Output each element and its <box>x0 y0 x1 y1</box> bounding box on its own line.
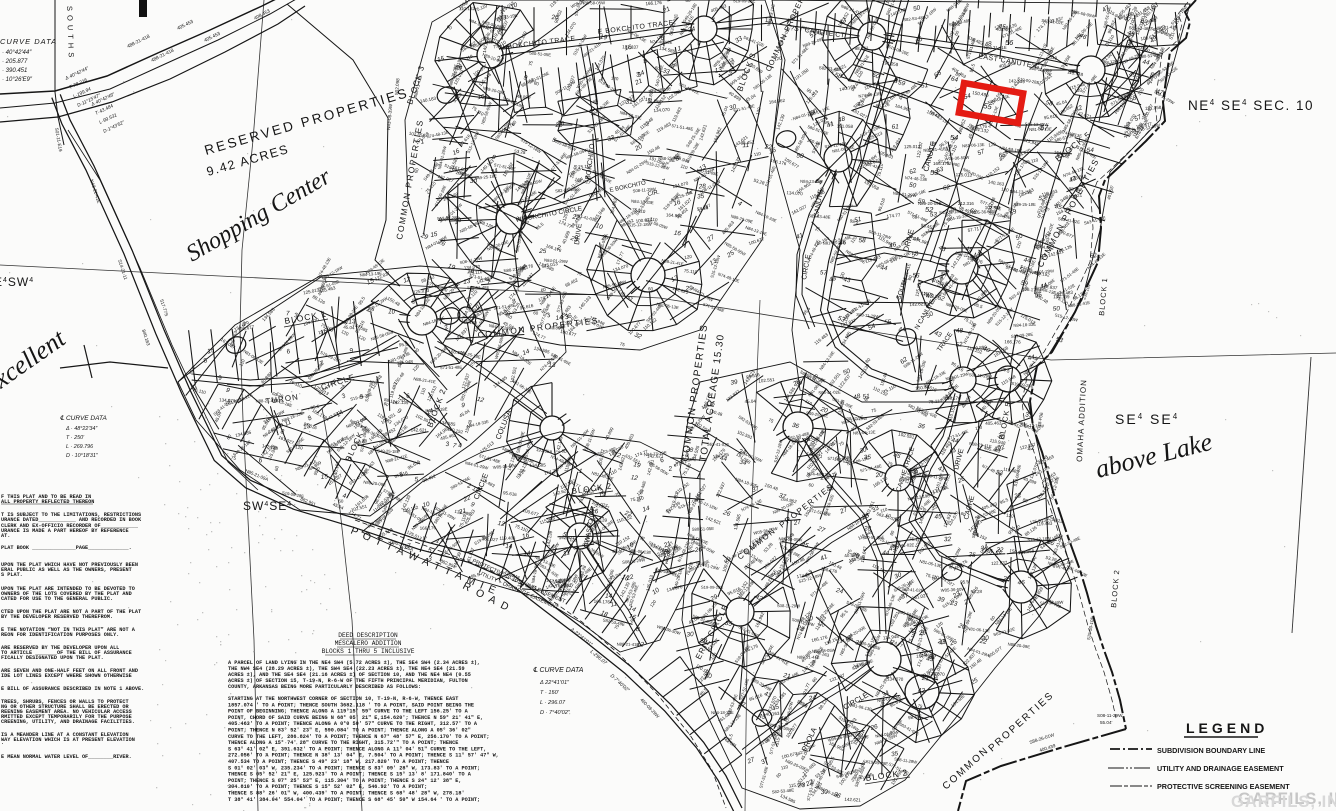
svg-text:28: 28 <box>863 525 872 532</box>
svg-text:S 01° 02′ 03″ W, 235.234′ TO A: S 01° 02′ 03″ W, 235.234′ TO A POINT; TH… <box>228 765 480 771</box>
svg-text:14: 14 <box>505 543 513 550</box>
svg-text:13: 13 <box>348 318 356 326</box>
svg-text:191.058: 191.058 <box>1145 105 1162 111</box>
svg-text:22: 22 <box>763 143 772 151</box>
svg-text:S19-09-28E: S19-09-28E <box>701 585 724 590</box>
svg-text:S49-25-18E: S49-25-18E <box>377 448 400 454</box>
svg-text:T · 250′: T · 250′ <box>66 435 85 441</box>
svg-text:Δ · 48°22′34″: Δ · 48°22′34″ <box>65 426 98 432</box>
svg-text:57: 57 <box>1040 123 1049 132</box>
svg-text:166.176: 166.176 <box>933 161 950 166</box>
svg-text:58: 58 <box>858 237 866 244</box>
svg-text:60: 60 <box>573 546 579 551</box>
svg-text:5: 5 <box>414 476 418 483</box>
svg-text:35: 35 <box>855 639 863 647</box>
svg-text:13: 13 <box>548 362 556 369</box>
svg-text:48: 48 <box>956 327 964 334</box>
svg-text:25: 25 <box>967 551 977 559</box>
svg-text:44: 44 <box>882 550 890 557</box>
svg-text:52: 52 <box>925 205 934 214</box>
svg-text:30: 30 <box>470 178 478 185</box>
svg-text:AT.: AT. <box>1 533 10 539</box>
svg-text:3: 3 <box>428 556 432 563</box>
svg-text:61: 61 <box>892 123 900 130</box>
svg-text:142.621: 142.621 <box>411 427 428 433</box>
svg-text:CREENING, UTILITY, AND DRAINAG: CREENING, UTILITY, AND DRAINAGE FACILITI… <box>1 719 135 725</box>
svg-text:BLOCKS 1 THRU 5 INCLUSIVE: BLOCKS 1 THRU 5 INCLUSIVE <box>322 648 415 655</box>
svg-text:11: 11 <box>742 142 749 149</box>
svg-text:D · 7°40′02″: D · 7°40′02″ <box>540 710 571 716</box>
svg-text:44: 44 <box>880 264 888 272</box>
svg-text:45: 45 <box>934 513 942 521</box>
svg-text:125.013: 125.013 <box>956 172 973 178</box>
svg-text:57: 57 <box>820 269 828 276</box>
svg-text:166.176: 166.176 <box>1004 339 1021 344</box>
svg-text:14: 14 <box>523 550 531 558</box>
svg-text:14: 14 <box>605 593 613 600</box>
svg-text:21: 21 <box>921 675 930 683</box>
svg-text:CURVE DATA: CURVE DATA <box>0 37 57 46</box>
svg-text:THENCE S 88° 26′ 01″ W, 400.43: THENCE S 88° 26′ 01″ W, 400.439′ TO A PO… <box>228 791 465 797</box>
svg-text:T · 150′: T · 150′ <box>540 690 560 696</box>
svg-text:THENCE S 05° 52′ 21″ E, 125.92: THENCE S 05° 52′ 21″ E, 125.923′ TO A PO… <box>228 772 472 778</box>
svg-text:STARTING AT THE NORTHWEST CORN: STARTING AT THE NORTHWEST CORNER OF SECT… <box>228 696 458 702</box>
svg-text:COUNTY, ARKANSAS BEING MORE PA: COUNTY, ARKANSAS BEING MORE PARTICULARLY… <box>228 684 421 690</box>
svg-text:42: 42 <box>918 687 926 694</box>
svg-text:MESCALERO ADDITION: MESCALERO ADDITION <box>335 640 402 647</box>
svg-text:80: 80 <box>1047 49 1053 54</box>
svg-text:44: 44 <box>719 455 727 463</box>
svg-text:· 10°26′E9″: · 10°26′E9″ <box>2 77 33 83</box>
svg-text:405.463′ TO A POINT; THENCE AL: 405.463′ TO A POINT; THENCE ALONG A 0°0 … <box>228 721 478 727</box>
svg-text:25: 25 <box>600 234 609 242</box>
svg-text:POINT; THENCE N 83° 52′ 23″ E,: POINT; THENCE N 83° 52′ 23″ E, 590.084′ … <box>228 728 471 734</box>
svg-text:62: 62 <box>955 341 963 349</box>
svg-text:THENCE ALONG A 15° 74′ 28″ CUR: THENCE ALONG A 15° 74′ 28″ CURVE TO THE … <box>228 740 458 746</box>
svg-text:191.058: 191.058 <box>837 124 854 129</box>
svg-text:NE4 SE4 SEC. 10: NE4 SE4 SEC. 10 <box>1188 98 1314 113</box>
svg-text:75.110: 75.110 <box>909 537 923 543</box>
svg-text:3: 3 <box>242 321 246 328</box>
svg-text:120: 120 <box>569 537 577 542</box>
svg-text:31: 31 <box>1025 411 1033 418</box>
svg-text:102.551: 102.551 <box>985 205 1002 210</box>
svg-text:35: 35 <box>864 454 872 461</box>
svg-text:51: 51 <box>921 82 929 90</box>
svg-text:POINT OF BEGINNING; THENCE ALO: POINT OF BEGINNING; THENCE ALONG A 119°1… <box>228 709 469 715</box>
svg-text:℄ CURVE DATA: ℄ CURVE DATA <box>60 415 107 422</box>
svg-text:580-51-05E: 580-51-05E <box>863 535 885 540</box>
svg-text:30: 30 <box>704 673 712 680</box>
svg-text:27: 27 <box>819 474 828 482</box>
svg-text:CATED FOR USE TO THE GENERAL P: CATED FOR USE TO THE GENERAL PUBLIC. <box>1 596 113 602</box>
svg-text:75: 75 <box>639 555 645 560</box>
svg-text:CURVE TO THE LEFT, 286.824′ TO: CURVE TO THE LEFT, 286.824′ TO A POINT; … <box>228 734 490 740</box>
svg-text:25: 25 <box>538 248 547 255</box>
svg-text:· 40°42′44″: · 40°42′44″ <box>2 50 32 56</box>
svg-text:30: 30 <box>821 789 829 797</box>
svg-text:10: 10 <box>388 308 396 315</box>
svg-text:166.176: 166.176 <box>420 525 437 531</box>
svg-text:55.04′: 55.04′ <box>1100 720 1112 725</box>
svg-text:FICALLY DESIGNATED UPON THE PL: FICALLY DESIGNATED UPON THE PLAT. <box>1 655 104 661</box>
svg-text:26: 26 <box>917 629 926 637</box>
svg-text:E BILL OF ASSURANCE DESCRIBED: E BILL OF ASSURANCE DESCRIBED IN NOTE 1 … <box>1 686 144 692</box>
svg-text:580-51-05E: 580-51-05E <box>692 526 714 532</box>
svg-text:IDE LOT LINES EXCEPT WHERE S: IDE LOT LINES EXCEPT WHERE SHOWN OTHERWI… <box>1 673 132 679</box>
svg-text:304.810′ TO A POINT; THENCE S: 304.810′ TO A POINT; THENCE S 15° 52′ 02… <box>228 784 427 790</box>
svg-text:31: 31 <box>625 98 633 106</box>
svg-text:N89-20-09E: N89-20-09E <box>918 201 942 206</box>
svg-text:54: 54 <box>1087 147 1095 154</box>
svg-text:POINT, CHORD OF SAID CURVE BEI: POINT, CHORD OF SAID CURVE BEING N 68° 0… <box>228 715 483 721</box>
svg-text:53: 53 <box>930 168 939 177</box>
svg-text:50: 50 <box>1053 305 1061 312</box>
svg-text:98.452: 98.452 <box>855 46 869 51</box>
svg-text:29: 29 <box>684 285 693 293</box>
svg-text:38: 38 <box>985 548 993 555</box>
svg-text:80: 80 <box>685 0 691 3</box>
svg-text:30: 30 <box>686 631 694 639</box>
svg-text:S08-11-29W: S08-11-29W <box>777 603 800 608</box>
svg-text:S49-25-18E: S49-25-18E <box>1013 202 1036 207</box>
svg-text:44: 44 <box>1023 257 1031 265</box>
svg-text:S63-41-02E: S63-41-02E <box>818 390 841 396</box>
svg-text:S O U T H S: S O U T H S <box>65 6 76 59</box>
svg-text:60: 60 <box>648 286 654 291</box>
svg-text:L · 269.796: L · 269.796 <box>66 444 93 450</box>
svg-text:22: 22 <box>571 214 580 222</box>
svg-text:65: 65 <box>998 152 1006 160</box>
svg-text:PLAT BOOK ______________PAGE__: PLAT BOOK ______________PAGE____________… <box>1 545 132 551</box>
svg-text:56: 56 <box>912 272 920 280</box>
svg-text:35: 35 <box>697 193 705 201</box>
svg-text:GARFILS, INC: GARFILS, INC <box>1231 793 1336 811</box>
svg-text:S19-09-28E: S19-09-28E <box>733 0 756 3</box>
svg-text:32: 32 <box>944 536 952 543</box>
svg-text:122.837: 122.837 <box>991 560 1008 566</box>
svg-text:BY THE DEVELOPER RESERVED THER: BY THE DEVELOPER RESERVED THEREFROM. <box>1 614 113 620</box>
svg-text:24: 24 <box>737 448 746 456</box>
svg-text:LEGEND: LEGEND <box>1186 720 1268 736</box>
svg-text:Δ 22°41′01″: Δ 22°41′01″ <box>539 680 570 686</box>
svg-text:SUBDIVISION BOUNDARY LINE: SUBDIVISION BOUNDARY LINE <box>1157 746 1265 755</box>
svg-text:95.5: 95.5 <box>960 579 970 585</box>
svg-text:134.585: 134.585 <box>529 463 546 468</box>
svg-text:S 63° 41′ 02″ E, 391.632′ TO A: S 63° 41′ 02″ E, 391.632′ TO A POINT; TH… <box>228 746 486 752</box>
svg-text:56: 56 <box>1005 38 1014 47</box>
svg-text:N85-58-05W: N85-58-05W <box>581 0 605 5</box>
svg-text:119.483: 119.483 <box>499 536 515 541</box>
svg-text:E MEAN NORMAL WATER LEVEL OF__: E MEAN NORMAL WATER LEVEL OF________RIVE… <box>1 754 132 760</box>
svg-text:53.28: 53.28 <box>971 589 983 594</box>
svg-text:S PLAT.: S PLAT. <box>1 572 23 578</box>
svg-text:13: 13 <box>764 16 772 24</box>
svg-text:REON FOR IDENTIFICATION PURPOS: REON FOR IDENTIFICATION PURPOSES ONLY. <box>1 632 119 638</box>
svg-text:51: 51 <box>862 393 870 401</box>
svg-text:142.621: 142.621 <box>844 797 861 803</box>
svg-text:24: 24 <box>807 694 817 702</box>
svg-text:272.056′ TO A POINT; THENCE N: 272.056′ TO A POINT; THENCE N 38° 13′ 04… <box>228 753 499 759</box>
svg-text:54: 54 <box>950 133 958 142</box>
svg-text:55: 55 <box>884 319 892 327</box>
svg-text:20: 20 <box>874 471 883 479</box>
svg-text:26: 26 <box>694 546 703 554</box>
svg-text:115: 115 <box>912 236 920 241</box>
svg-text:120: 120 <box>611 76 619 82</box>
svg-text:46: 46 <box>1018 579 1026 586</box>
svg-text:· 390.451: · 390.451 <box>2 68 27 74</box>
svg-text:WAY ELEVATION WHICH IS AT PRES: WAY ELEVATION WHICH IS AT PRESENT ELEVAT… <box>1 737 135 743</box>
svg-text:16: 16 <box>673 230 681 238</box>
svg-text:SE4 SE4: SE4 SE4 <box>1115 411 1179 427</box>
svg-text:℄ CURVE DATA: ℄ CURVE DATA <box>533 666 584 674</box>
svg-text:1857.074 ′ TO A POINT; THENCE: 1857.074 ′ TO A POINT; THENCE SOUTH 3682… <box>228 702 474 708</box>
svg-text:L · 296.07: L · 296.07 <box>540 700 566 706</box>
svg-text:43: 43 <box>926 656 934 664</box>
svg-text:T 38° 41′ 384.04′ 554.04′ TO A: T 38° 41′ 384.04′ 554.04′ TO A POINT; TH… <box>228 797 480 803</box>
svg-text:15: 15 <box>321 473 329 481</box>
svg-text:212.316: 212.316 <box>958 201 974 206</box>
svg-text:DEED DESCRIPTION: DEED DESCRIPTION <box>338 632 398 639</box>
svg-text:45.04: 45.04 <box>744 399 756 404</box>
svg-text:45: 45 <box>998 23 1006 31</box>
svg-text:134.070: 134.070 <box>928 671 945 677</box>
svg-text:.: . <box>1 740 4 746</box>
svg-text:UTILITY AND DRAINAGE EASEMENT: UTILITY AND DRAINAGE EASEMENT <box>1157 764 1284 773</box>
svg-text:URANCE IS MADE A PART HEREOF B: URANCE IS MADE A PART HEREOF BY REFERENC… <box>1 528 129 534</box>
svg-text:142.139: 142.139 <box>1008 78 1025 84</box>
svg-text:60: 60 <box>533 310 539 315</box>
svg-text:POINT; THENCE S 07° 25′ 53″ E,: POINT; THENCE S 07° 25′ 53″ E, 115.304′ … <box>228 778 461 784</box>
svg-text:S08-11-29W: S08-11-29W <box>1097 713 1123 718</box>
svg-text:18: 18 <box>558 578 566 586</box>
svg-text:50: 50 <box>796 152 804 160</box>
svg-text:407.534 TO A POINT; THENCE S 4: 407.534 TO A POINT; THENCE S 49° 23′ 18″… <box>228 759 449 765</box>
svg-text:571-51-48E: 571-51-48E <box>440 365 462 370</box>
svg-text:28: 28 <box>698 183 707 191</box>
svg-text:· 205.877: · 205.877 <box>2 59 28 65</box>
svg-text:28: 28 <box>1002 575 1011 583</box>
svg-text:26: 26 <box>550 14 559 21</box>
svg-text:D · 10°18′31″: D · 10°18′31″ <box>66 453 99 459</box>
svg-text:12: 12 <box>686 188 694 195</box>
svg-text:142.621: 142.621 <box>909 301 926 307</box>
svg-text:23: 23 <box>797 782 806 789</box>
